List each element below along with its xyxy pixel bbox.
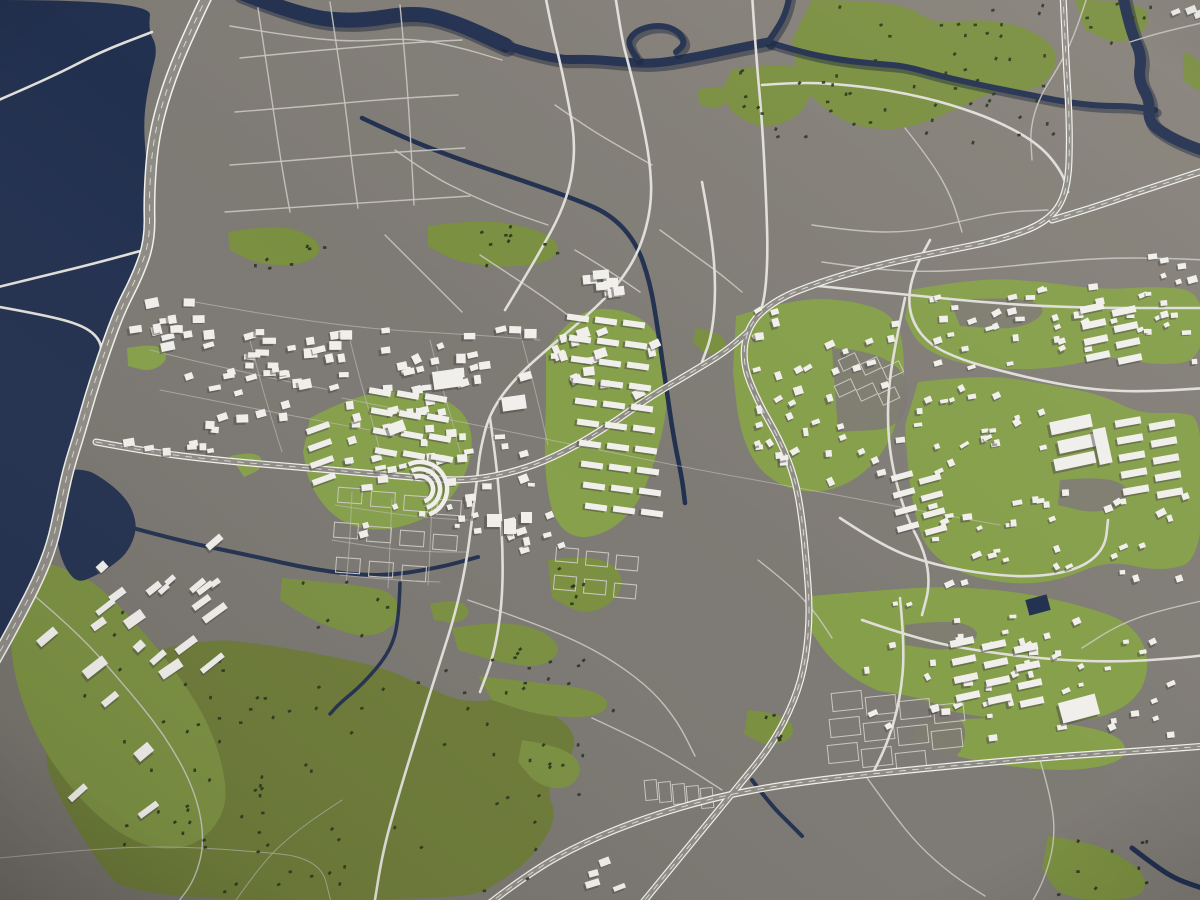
map-viewport[interactable]: [0, 0, 1200, 900]
vignette-overlay: [0, 0, 1200, 900]
city-map-svg: [0, 0, 1200, 900]
overlay-lighting: [0, 0, 1200, 900]
